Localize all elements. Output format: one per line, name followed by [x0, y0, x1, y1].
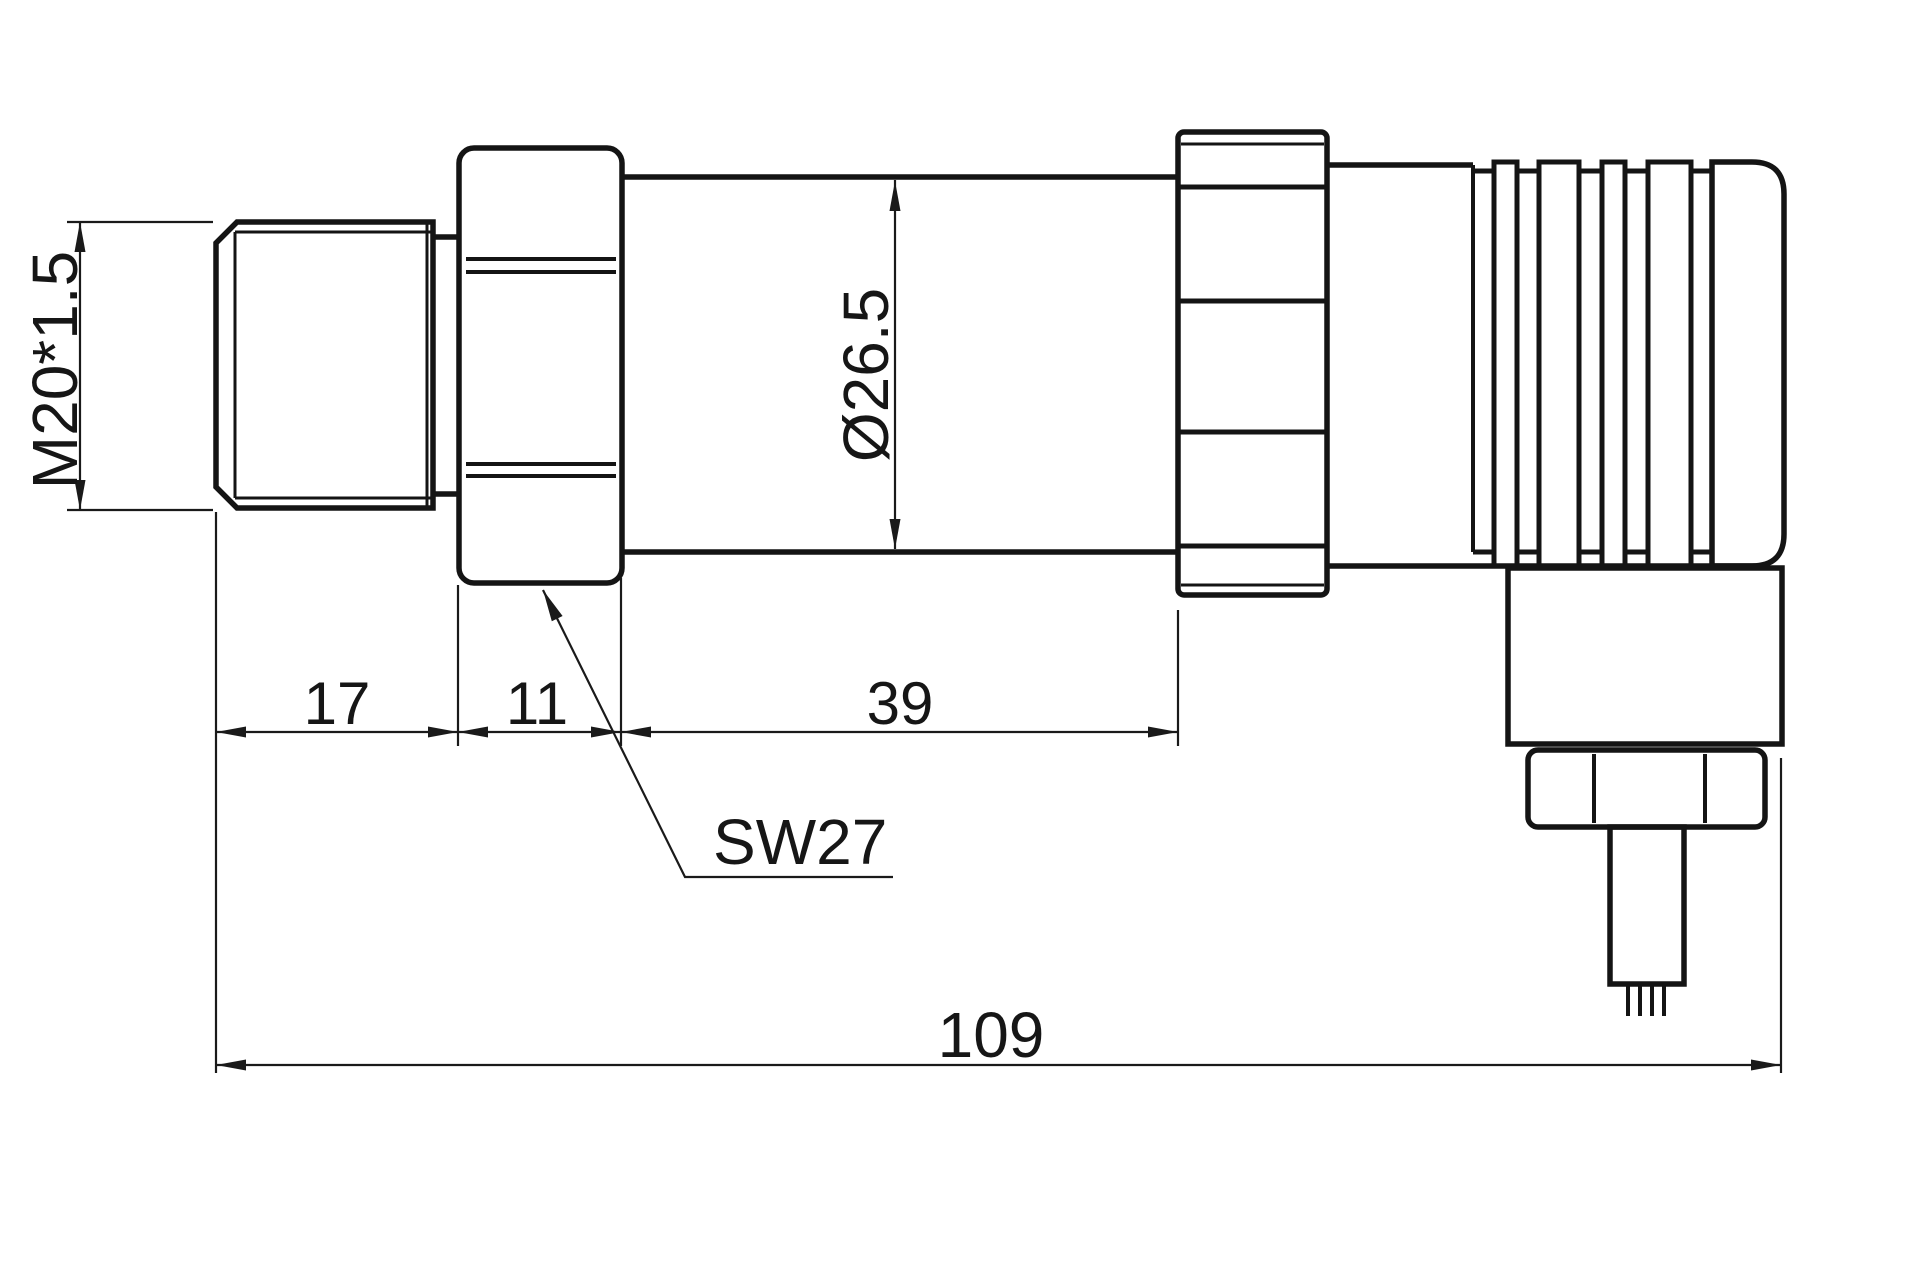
arrow-up-left-icon: [543, 590, 563, 621]
dim-overall-length: 109: [216, 758, 1781, 1073]
label-thread-length: 17: [304, 670, 371, 737]
arrow-up-icon: [75, 222, 86, 252]
arrow-left-icon: [458, 727, 488, 738]
arrow-up-icon: [890, 181, 901, 211]
label-hex-length: 11: [506, 670, 568, 737]
coupling-ring: [1178, 132, 1327, 595]
technical-drawing-canvas: M20*1.5 Ø26.5 17 11 39 SW27 109: [0, 0, 1920, 1273]
cable-gland: [1528, 750, 1765, 827]
label-body-length: 39: [867, 670, 934, 737]
arrow-left-icon: [216, 1060, 246, 1071]
arrow-down-icon: [890, 519, 901, 549]
arrow-right-icon: [591, 727, 621, 738]
hex-nut: [459, 148, 622, 583]
connector-ribs: [1473, 162, 1712, 566]
dim-body-diameter: Ø26.5: [830, 180, 902, 549]
thread-neck: [433, 237, 460, 494]
cable-stem: [1610, 827, 1684, 984]
label-body-diameter: Ø26.5: [830, 288, 902, 462]
connector-block: [1508, 568, 1782, 744]
label-thread-spec: M20*1.5: [19, 251, 91, 489]
dim-thread-spec: M20*1.5: [19, 222, 213, 510]
arrow-right-icon: [1148, 727, 1178, 738]
arrow-left-icon: [216, 727, 246, 738]
label-overall-length: 109: [938, 999, 1045, 1071]
wire-leads: [1628, 984, 1664, 1016]
arrow-left-icon: [621, 727, 651, 738]
label-wrench-size: SW27: [713, 806, 887, 878]
arrow-right-icon: [428, 727, 458, 738]
arrow-right-icon: [1751, 1060, 1781, 1071]
connector-cap: [1712, 162, 1784, 566]
technical-drawing-page: M20*1.5 Ø26.5 17 11 39 SW27 109: [0, 0, 1920, 1273]
thread-stub: [216, 222, 433, 508]
dim-length-chain: 17 11 39: [216, 512, 1178, 1073]
